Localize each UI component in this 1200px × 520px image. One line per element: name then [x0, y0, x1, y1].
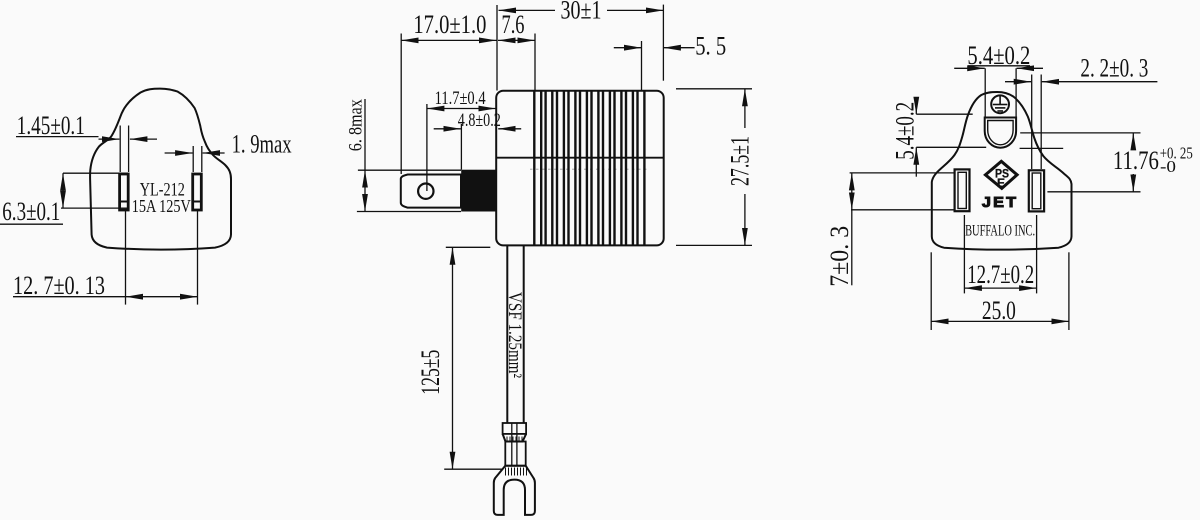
svg-text:-0: -0	[1160, 157, 1176, 176]
svg-text:E: E	[997, 176, 1005, 190]
svg-text:17.0±1.0: 17.0±1.0	[413, 10, 486, 39]
svg-text:1. 9max: 1. 9max	[232, 129, 292, 158]
svg-text:VSF 1.25mm²: VSF 1.25mm²	[504, 292, 524, 378]
svg-text:12. 7±0. 13: 12. 7±0. 13	[13, 271, 105, 300]
svg-text:5. 5: 5. 5	[695, 32, 726, 61]
svg-text:12.7±0.2: 12.7±0.2	[967, 260, 1034, 289]
svg-text:30±1: 30±1	[561, 0, 602, 25]
svg-text:BUFFALO INC.: BUFFALO INC.	[965, 223, 1035, 240]
svg-text:25.0: 25.0	[982, 296, 1016, 325]
svg-text:11.76: 11.76	[1113, 146, 1159, 175]
svg-text:7.6: 7.6	[502, 10, 525, 39]
svg-text:7±0. 3: 7±0. 3	[825, 226, 854, 287]
svg-text:1.45±0.1: 1.45±0.1	[17, 111, 85, 140]
svg-text:5.4±0.2: 5.4±0.2	[890, 102, 919, 160]
svg-text:27.5±1: 27.5±1	[726, 136, 755, 186]
svg-text:2. 2±0. 3: 2. 2±0. 3	[1080, 53, 1148, 82]
svg-text:125±5: 125±5	[416, 350, 445, 395]
svg-text:11.7±0.4: 11.7±0.4	[435, 88, 486, 109]
svg-text:JET: JET	[982, 195, 1019, 211]
svg-text:6.3±0.1: 6.3±0.1	[2, 197, 60, 226]
svg-text:15A 125V: 15A 125V	[132, 196, 191, 216]
svg-text:4.8±0.2: 4.8±0.2	[458, 110, 501, 131]
svg-text:6. 8max: 6. 8max	[346, 99, 367, 151]
